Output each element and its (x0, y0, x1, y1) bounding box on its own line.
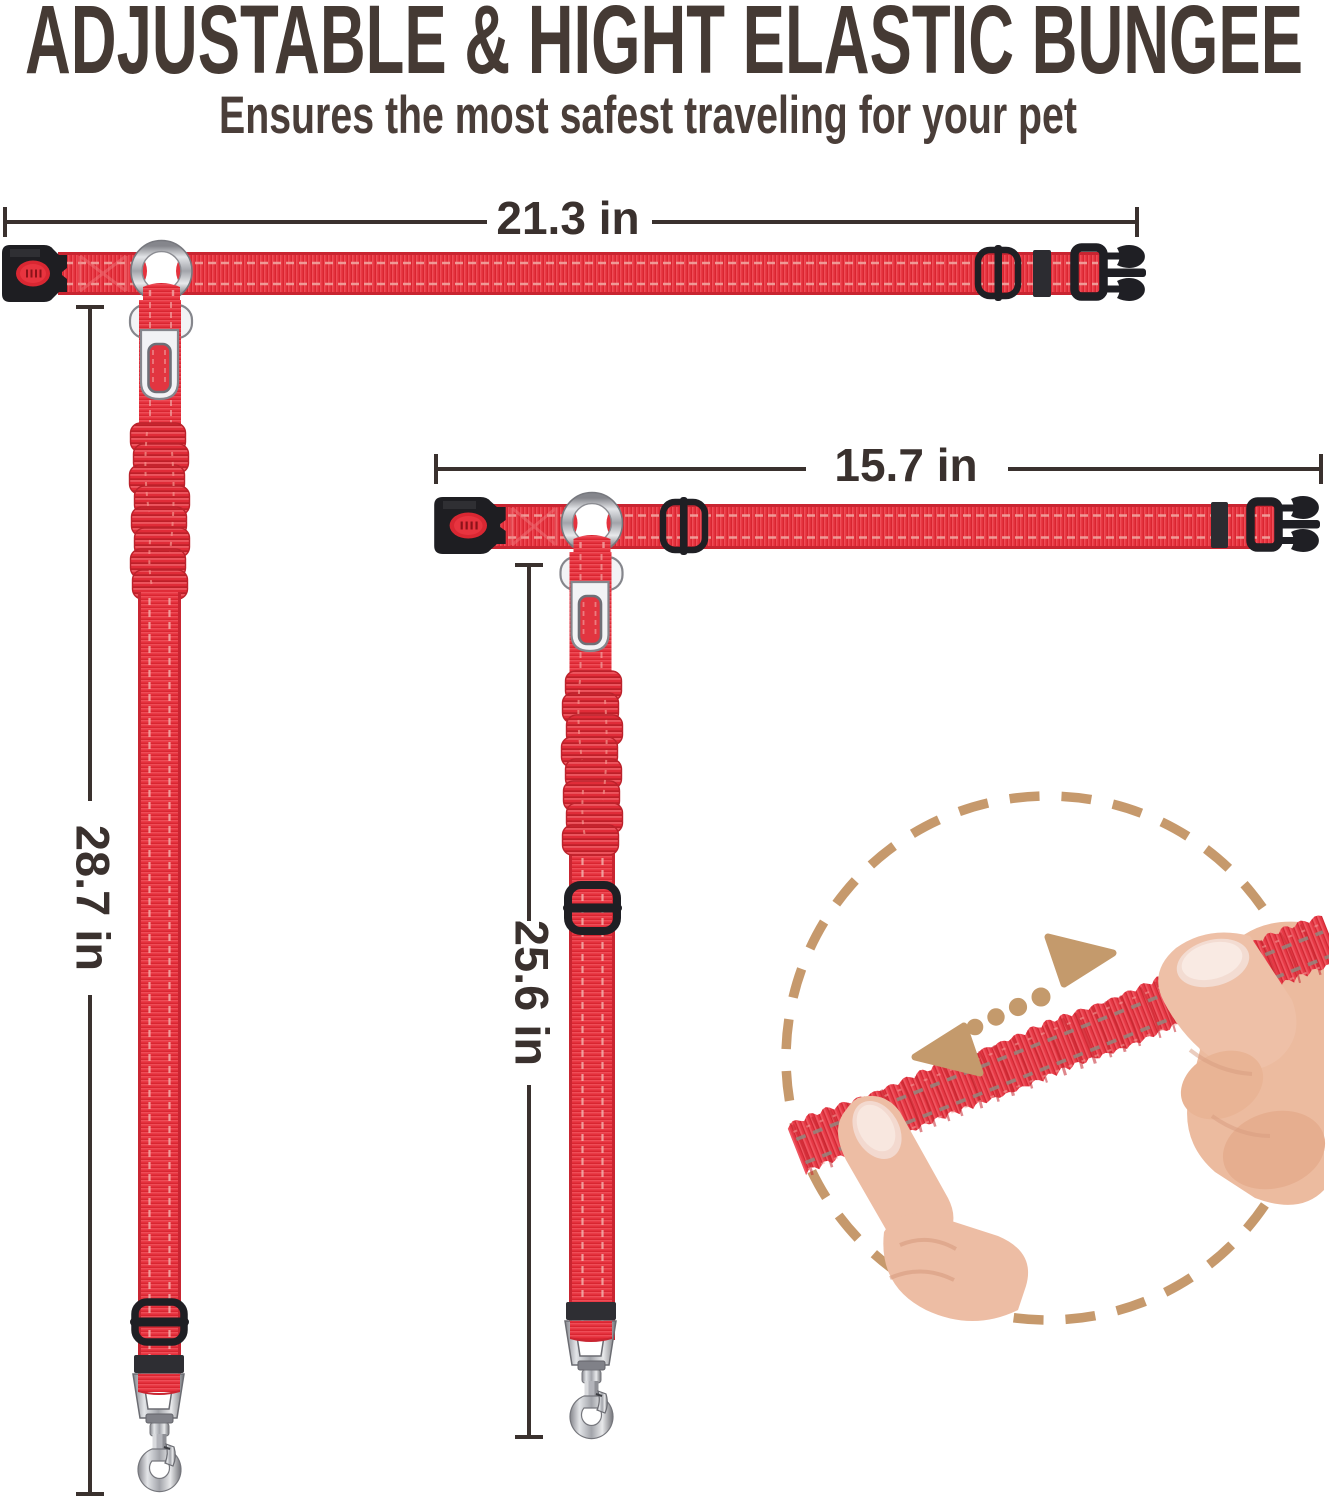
svg-text:ADJUSTABLE & HIGHT ELASTIC BUN: ADJUSTABLE & HIGHT ELASTIC BUNGEE (25, 0, 1303, 94)
svg-text:21.3 in: 21.3 in (496, 192, 639, 244)
svg-text:15.7 in: 15.7 in (834, 439, 977, 491)
svg-text:Ensures the most safest travel: Ensures the most safest traveling for yo… (219, 86, 1077, 145)
svg-text:28.7 in: 28.7 in (67, 825, 120, 971)
svg-text:25.6 in: 25.6 in (506, 920, 559, 1066)
